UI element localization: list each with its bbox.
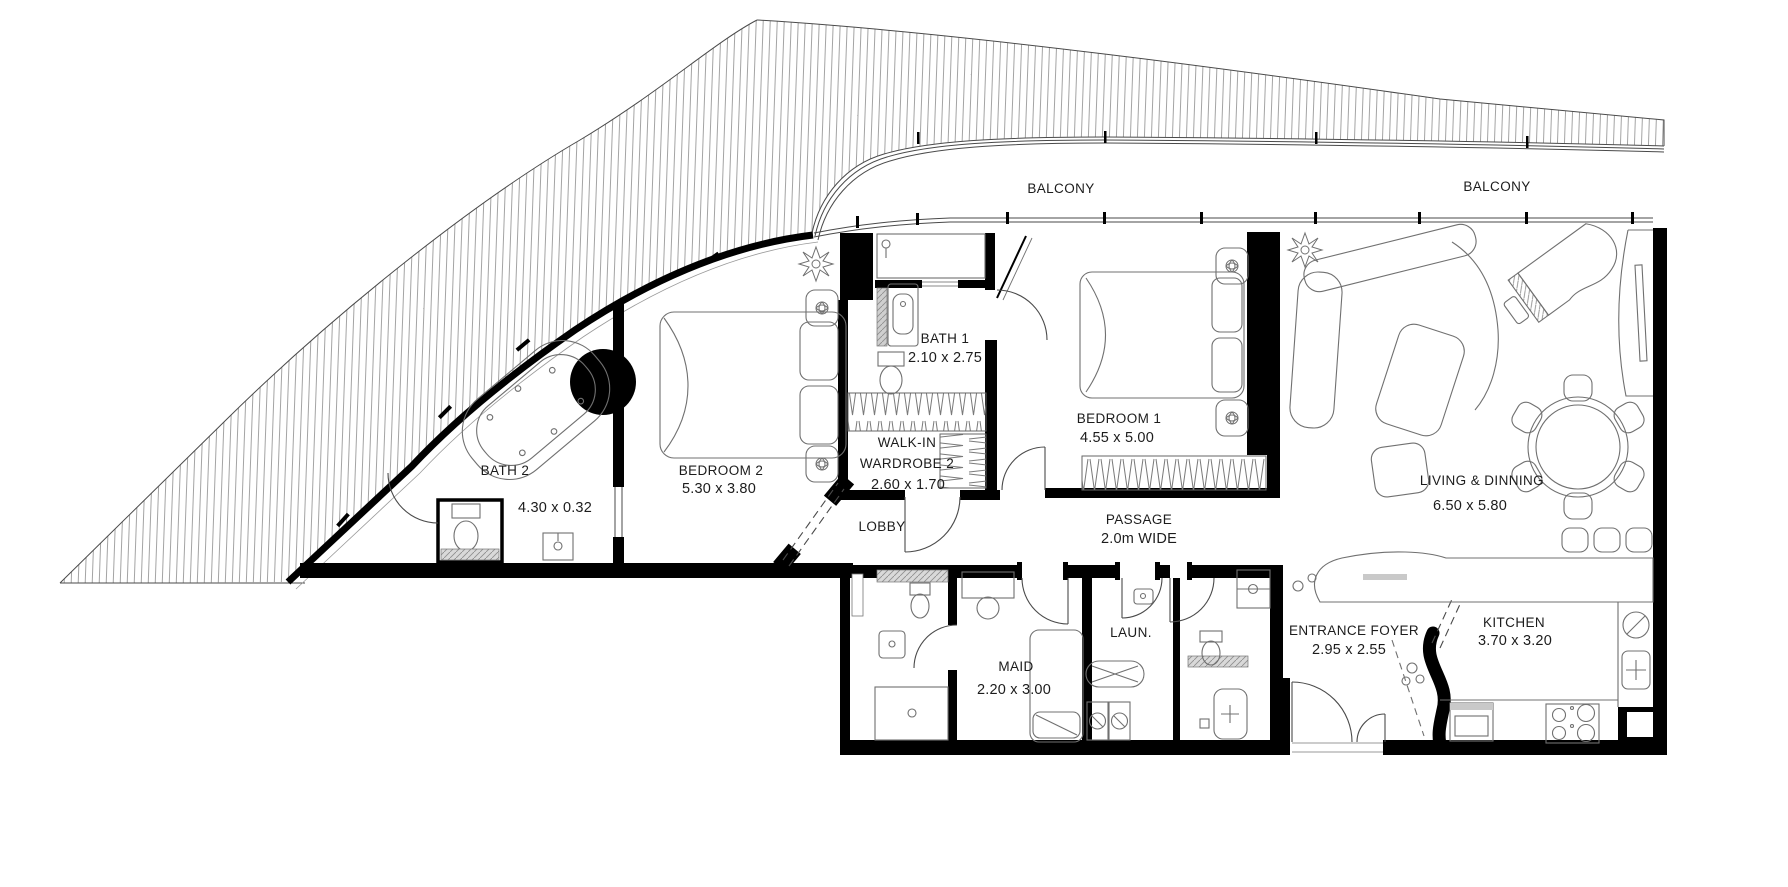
bedroom2-label: BEDROOM 2	[679, 463, 764, 478]
bedroom2-dims: 5.30 x 3.80	[682, 481, 756, 497]
bath2-label: BATH 2	[481, 463, 530, 478]
lobby-label: LOBBY	[858, 519, 905, 534]
living-dims: 6.50 x 5.80	[1433, 498, 1507, 514]
floor-plan-drawing: BALCONY BALCONY BATH 1 2.10 x 2.75 WALK-…	[0, 0, 1788, 887]
laundry-label: LAUN.	[1110, 625, 1152, 640]
bedroom1-wardrobe-rail	[1082, 456, 1266, 490]
balcony-left-label: BALCONY	[1027, 181, 1094, 196]
walkin-wardrobe-rail	[848, 393, 986, 431]
kitchen-label: KITCHEN	[1483, 615, 1545, 630]
bath1-label: BATH 1	[921, 331, 970, 346]
bedroom1-label: BEDROOM 1	[1077, 411, 1162, 426]
living-label: LIVING & DINNING	[1420, 473, 1544, 488]
kitchen-dims: 3.70 x 3.20	[1478, 633, 1552, 649]
bath1-dims: 2.10 x 2.75	[908, 350, 982, 366]
floor-plan-page: BALCONY BALCONY BATH 1 2.10 x 2.75 WALK-…	[0, 0, 1788, 887]
balcony-right-label: BALCONY	[1463, 179, 1530, 194]
walkin-label-line1: WALK-IN	[878, 435, 937, 450]
passage-dims: 2.0m WIDE	[1101, 531, 1177, 547]
structural-column	[570, 349, 636, 415]
foyer-dims: 2.95 x 2.55	[1312, 642, 1386, 658]
maid-dims: 2.20 x 3.00	[977, 682, 1051, 698]
walkin-dims: 2.60 x 1.70	[871, 477, 945, 493]
walkin-label-line2: WARDROBE 2	[860, 456, 954, 471]
bedroom1-dims: 4.55 x 5.00	[1080, 430, 1154, 446]
passage-label: PASSAGE	[1106, 512, 1172, 527]
bath2-dims: 4.30 x 0.32	[518, 500, 592, 516]
maid-label: MAID	[998, 659, 1033, 674]
foyer-label: ENTRANCE FOYER	[1289, 623, 1419, 638]
